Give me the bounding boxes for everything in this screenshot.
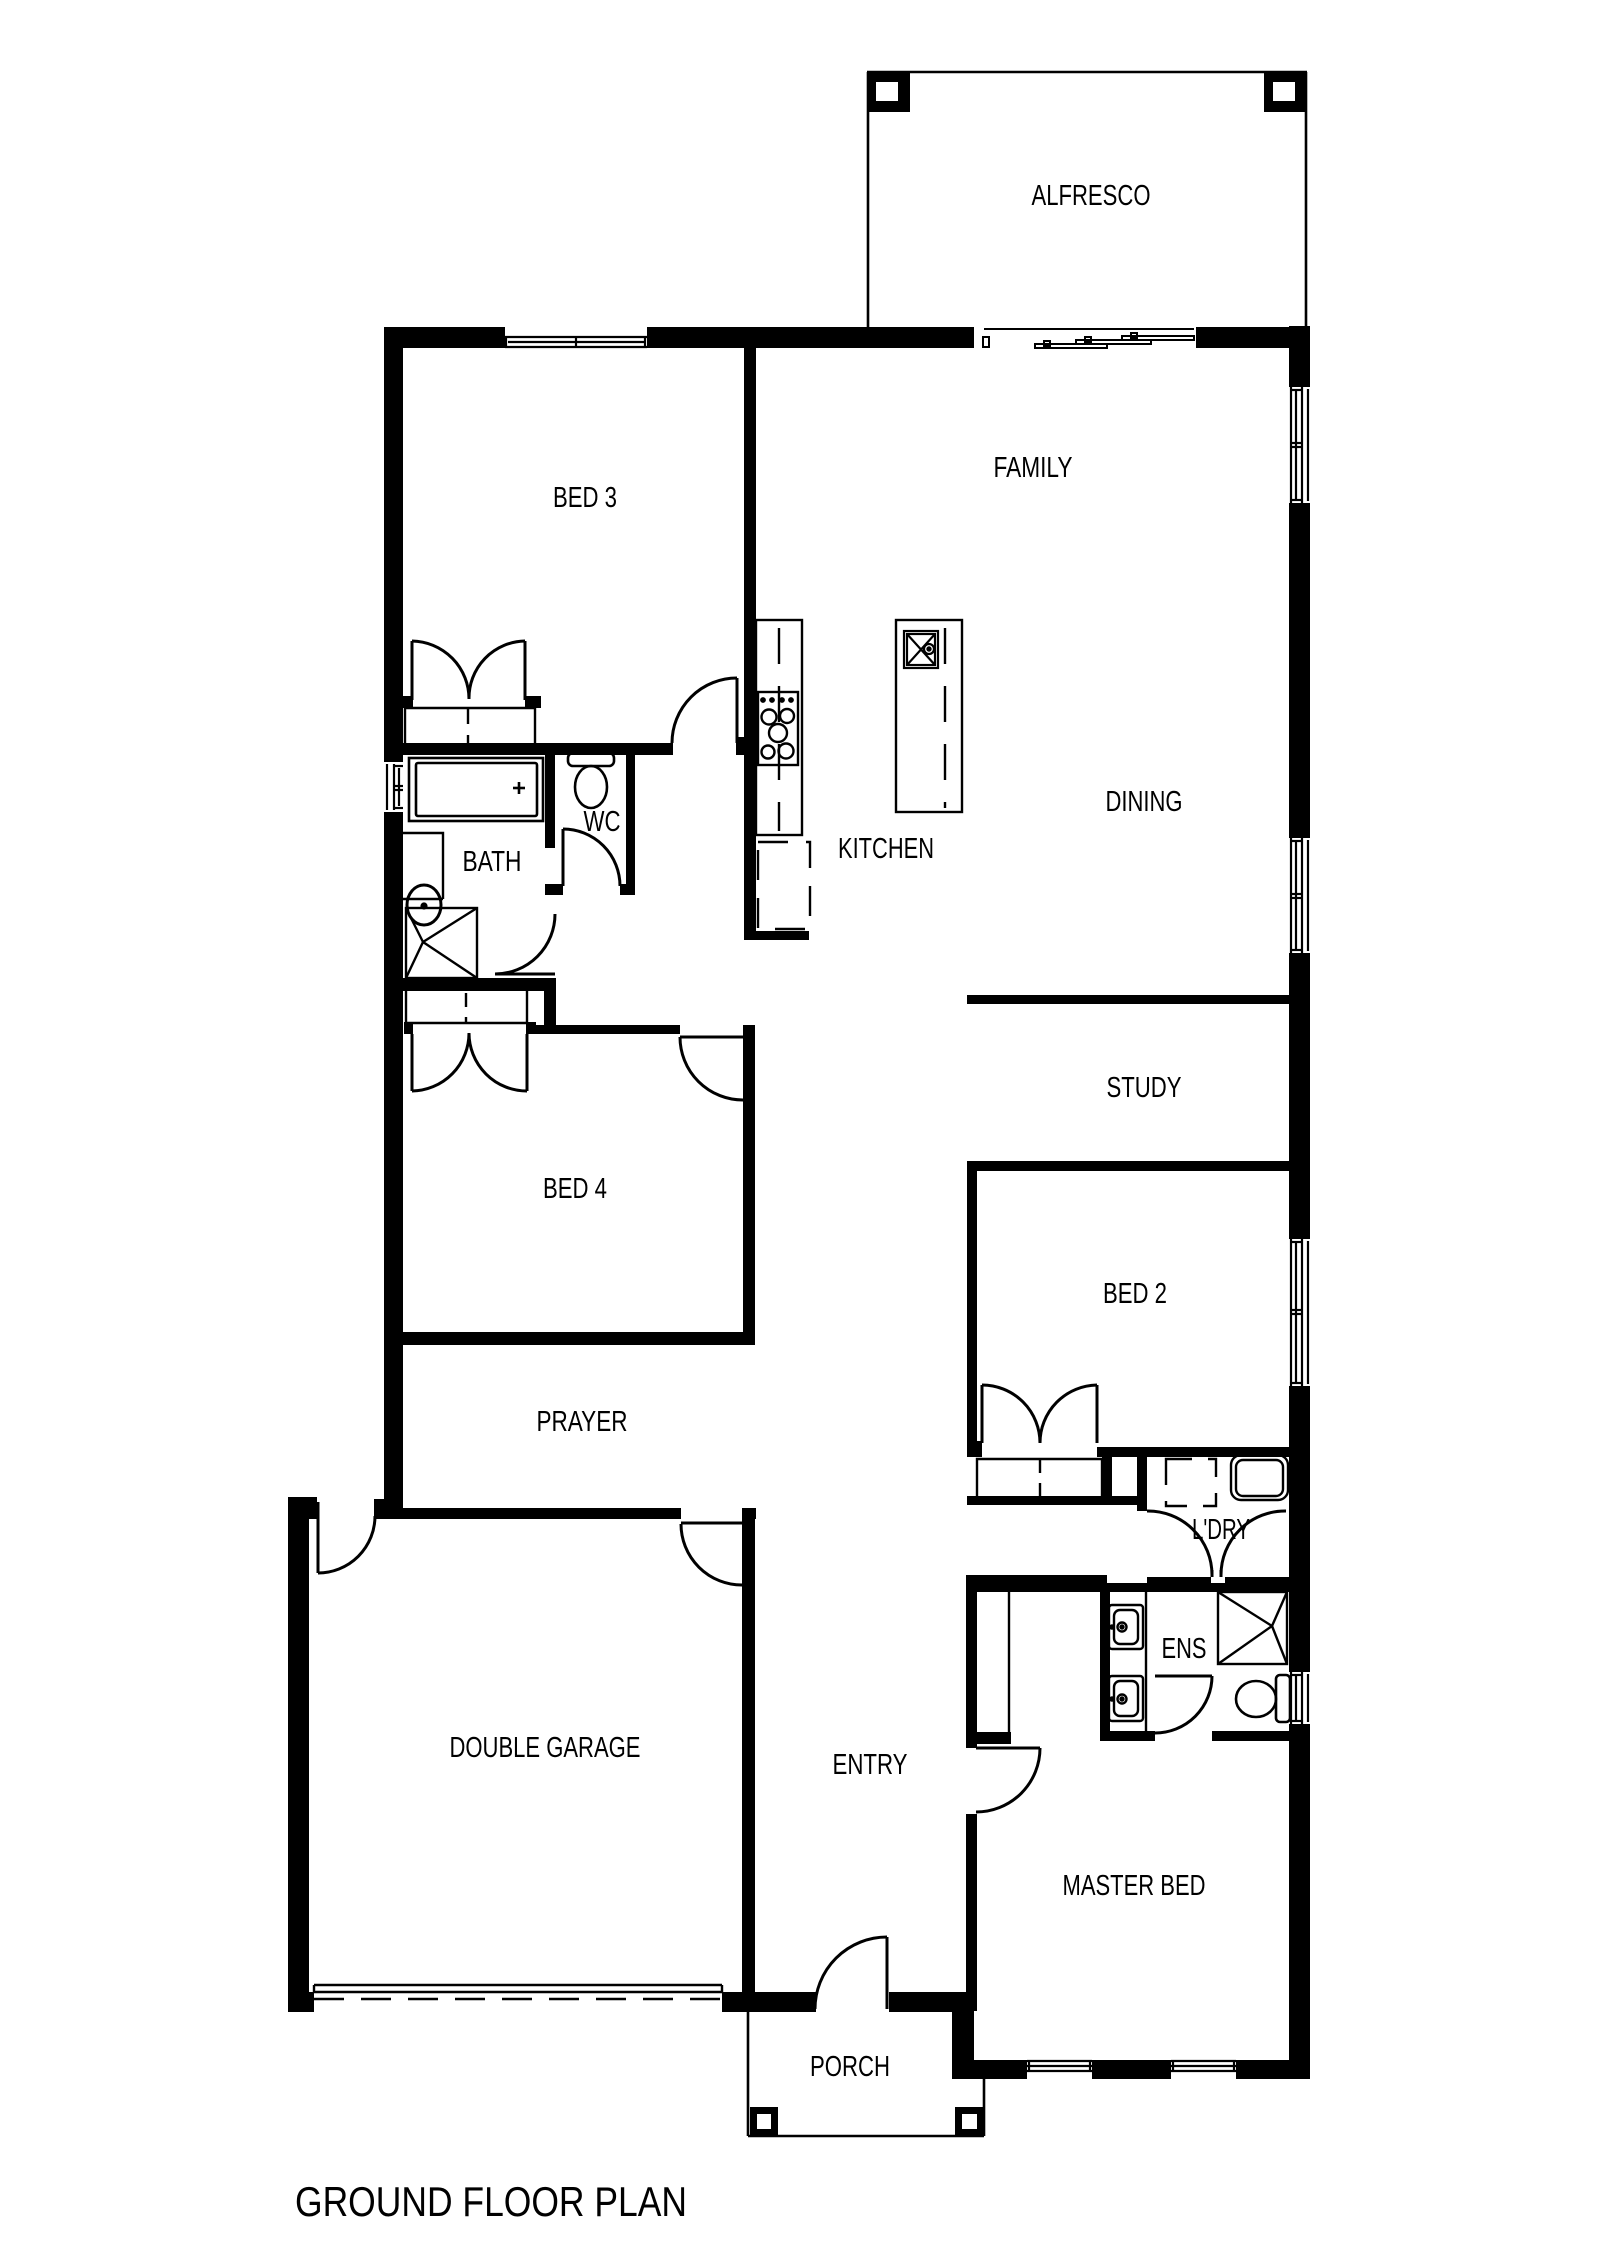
svg-text:L'DRY: L'DRY xyxy=(1192,1514,1250,1546)
svg-text:BED 3: BED 3 xyxy=(553,482,617,514)
svg-text:BED 2: BED 2 xyxy=(1103,1278,1167,1310)
svg-text:PRAYER: PRAYER xyxy=(537,1406,628,1438)
svg-text:FAMILY: FAMILY xyxy=(994,452,1073,484)
svg-text:DINING: DINING xyxy=(1106,786,1183,818)
svg-text:ALFRESCO: ALFRESCO xyxy=(1032,180,1151,212)
svg-text:PORCH: PORCH xyxy=(810,2051,890,2083)
svg-text:KITCHEN: KITCHEN xyxy=(838,833,934,865)
svg-text:ENTRY: ENTRY xyxy=(833,1749,908,1781)
svg-text:DOUBLE GARAGE: DOUBLE GARAGE xyxy=(450,1732,641,1764)
svg-text:WC: WC xyxy=(584,806,621,838)
svg-text:MASTER BED: MASTER BED xyxy=(1063,1870,1206,1902)
svg-text:ENS: ENS xyxy=(1162,1633,1207,1665)
svg-text:BATH: BATH xyxy=(463,846,522,878)
svg-text:GROUND FLOOR PLAN: GROUND FLOOR PLAN xyxy=(295,2178,687,2225)
svg-text:STUDY: STUDY xyxy=(1107,1072,1182,1104)
svg-text:BED 4: BED 4 xyxy=(543,1173,607,1205)
